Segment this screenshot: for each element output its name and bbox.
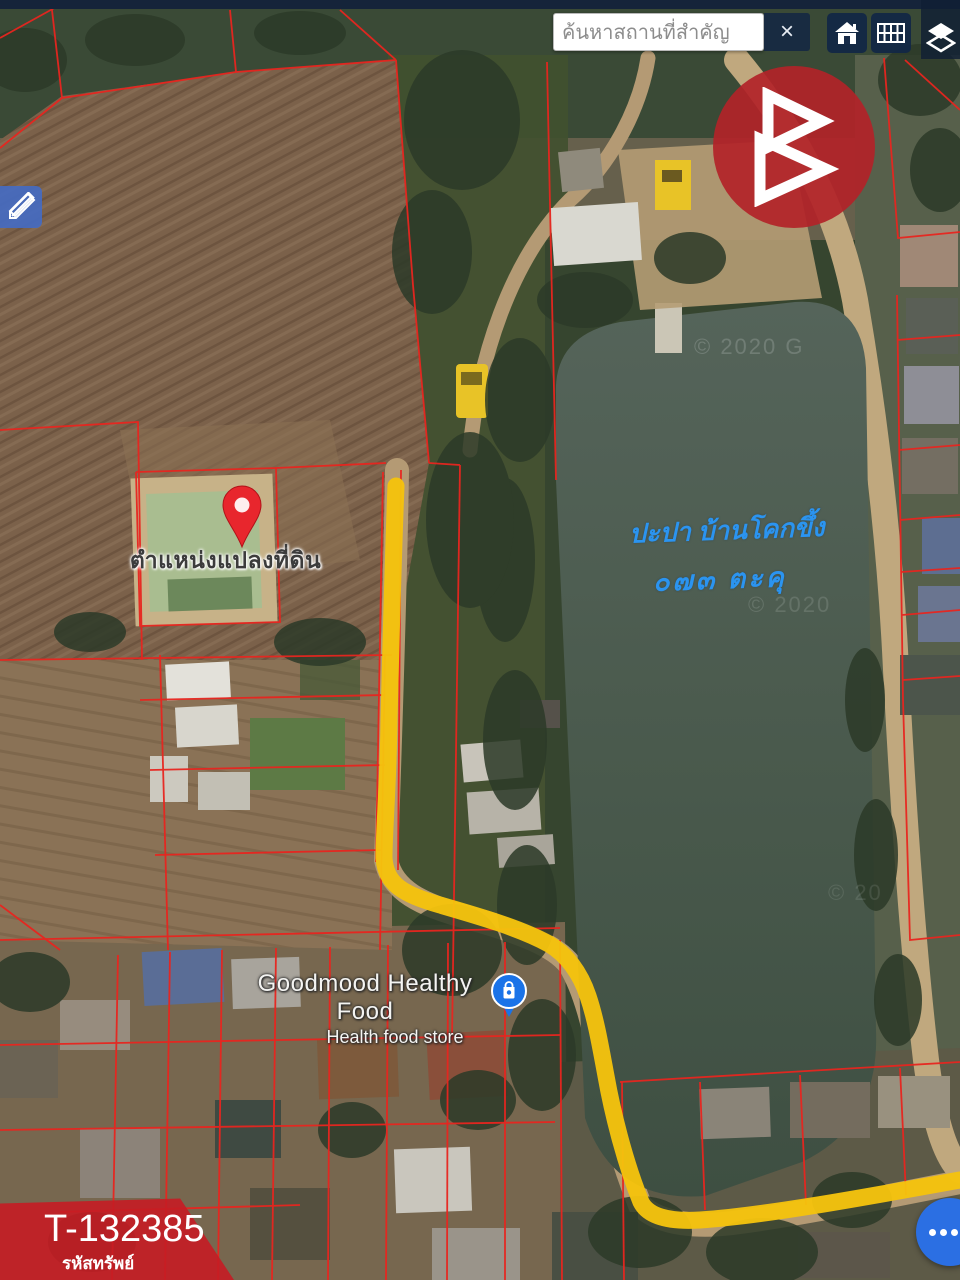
home-button[interactable] [827, 13, 867, 53]
grid-table-icon [877, 23, 905, 43]
poi-name: Goodmood Healthy Food [240, 970, 490, 1026]
map-watermark: © 2020 G [694, 334, 805, 360]
ellipsis-icon [929, 1229, 960, 1236]
handwritten-pond-note: ปะปา บ้านโคกขึ้ง ๐๗๓ ตะคุ [628, 506, 841, 603]
pond-note-line2: ๐๗๓ ตะคุ [652, 553, 841, 603]
property-code-label: รหัสทรัพย์ [62, 1250, 134, 1277]
property-code: T-132385 [44, 1208, 205, 1251]
crane-vehicle [655, 160, 691, 210]
grid-view-button[interactable] [871, 13, 911, 53]
pond-note-line1: ปะปา บ้านโคกขึ้ง [628, 506, 839, 554]
poi-label: Goodmood Healthy Food Health food store [240, 970, 490, 1048]
pencil-ruler-icon [6, 192, 36, 222]
layers-button[interactable] [921, 0, 960, 59]
poi-category: Health food store [300, 1027, 490, 1048]
search-input[interactable] [553, 13, 764, 51]
location-pin-icon[interactable] [218, 485, 266, 549]
company-logo [713, 66, 875, 228]
search-box[interactable] [553, 13, 764, 51]
pier [655, 303, 682, 353]
search-clear-button[interactable]: × [764, 13, 810, 51]
triangle-b-logo-icon [734, 87, 854, 207]
home-icon [834, 21, 860, 45]
map-watermark: © 20 [828, 880, 883, 906]
draw-measure-tool-button[interactable] [0, 186, 42, 228]
plot-location-label: ตำแหน่งแปลงที่ดิน [118, 543, 333, 579]
shopping-bag-pin-icon[interactable] [490, 972, 528, 1020]
top-navy-strip [0, 0, 960, 9]
layers-icon [926, 21, 956, 53]
map-app-screen: © 2020 G © 2020 © 20 ปะปา บ้านโคกขึ้ง ๐๗… [0, 0, 960, 1280]
yellow-truck [456, 364, 488, 418]
